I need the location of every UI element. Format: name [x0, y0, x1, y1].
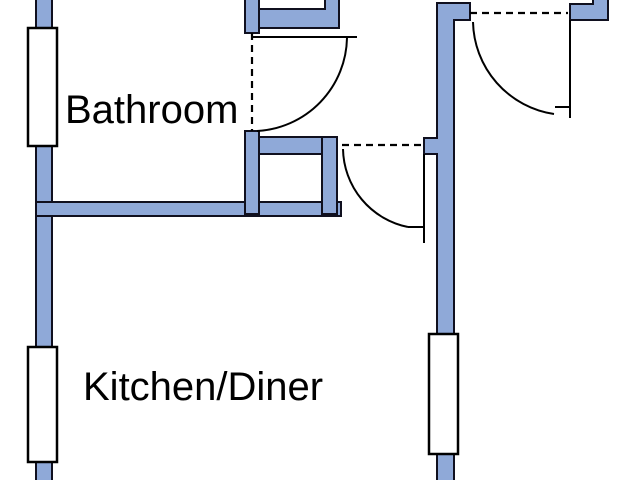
top-right-wall — [570, 0, 608, 20]
floor-plan-canvas: Bathroom Kitchen/Diner — [0, 0, 640, 480]
hall-door-swing-arc — [473, 22, 554, 114]
bathroom-bottom-wall — [36, 202, 341, 216]
closet-right-wall — [322, 137, 337, 214]
top-middle-wall — [259, 0, 339, 28]
hall-window — [429, 334, 458, 454]
bathroom-door-swing-arc — [257, 38, 347, 131]
bathroom-label: Bathroom — [65, 88, 238, 132]
kitchen-diner-label: Kitchen/Diner — [83, 365, 323, 409]
closet-left-wall — [245, 131, 259, 214]
floor-plan: Bathroom Kitchen/Diner — [0, 0, 640, 480]
kitchen-door-swing-arc — [343, 149, 408, 227]
bathroom-window — [28, 28, 57, 146]
bathroom-right-wall-upper — [245, 0, 259, 33]
kitchen-window — [28, 347, 57, 462]
